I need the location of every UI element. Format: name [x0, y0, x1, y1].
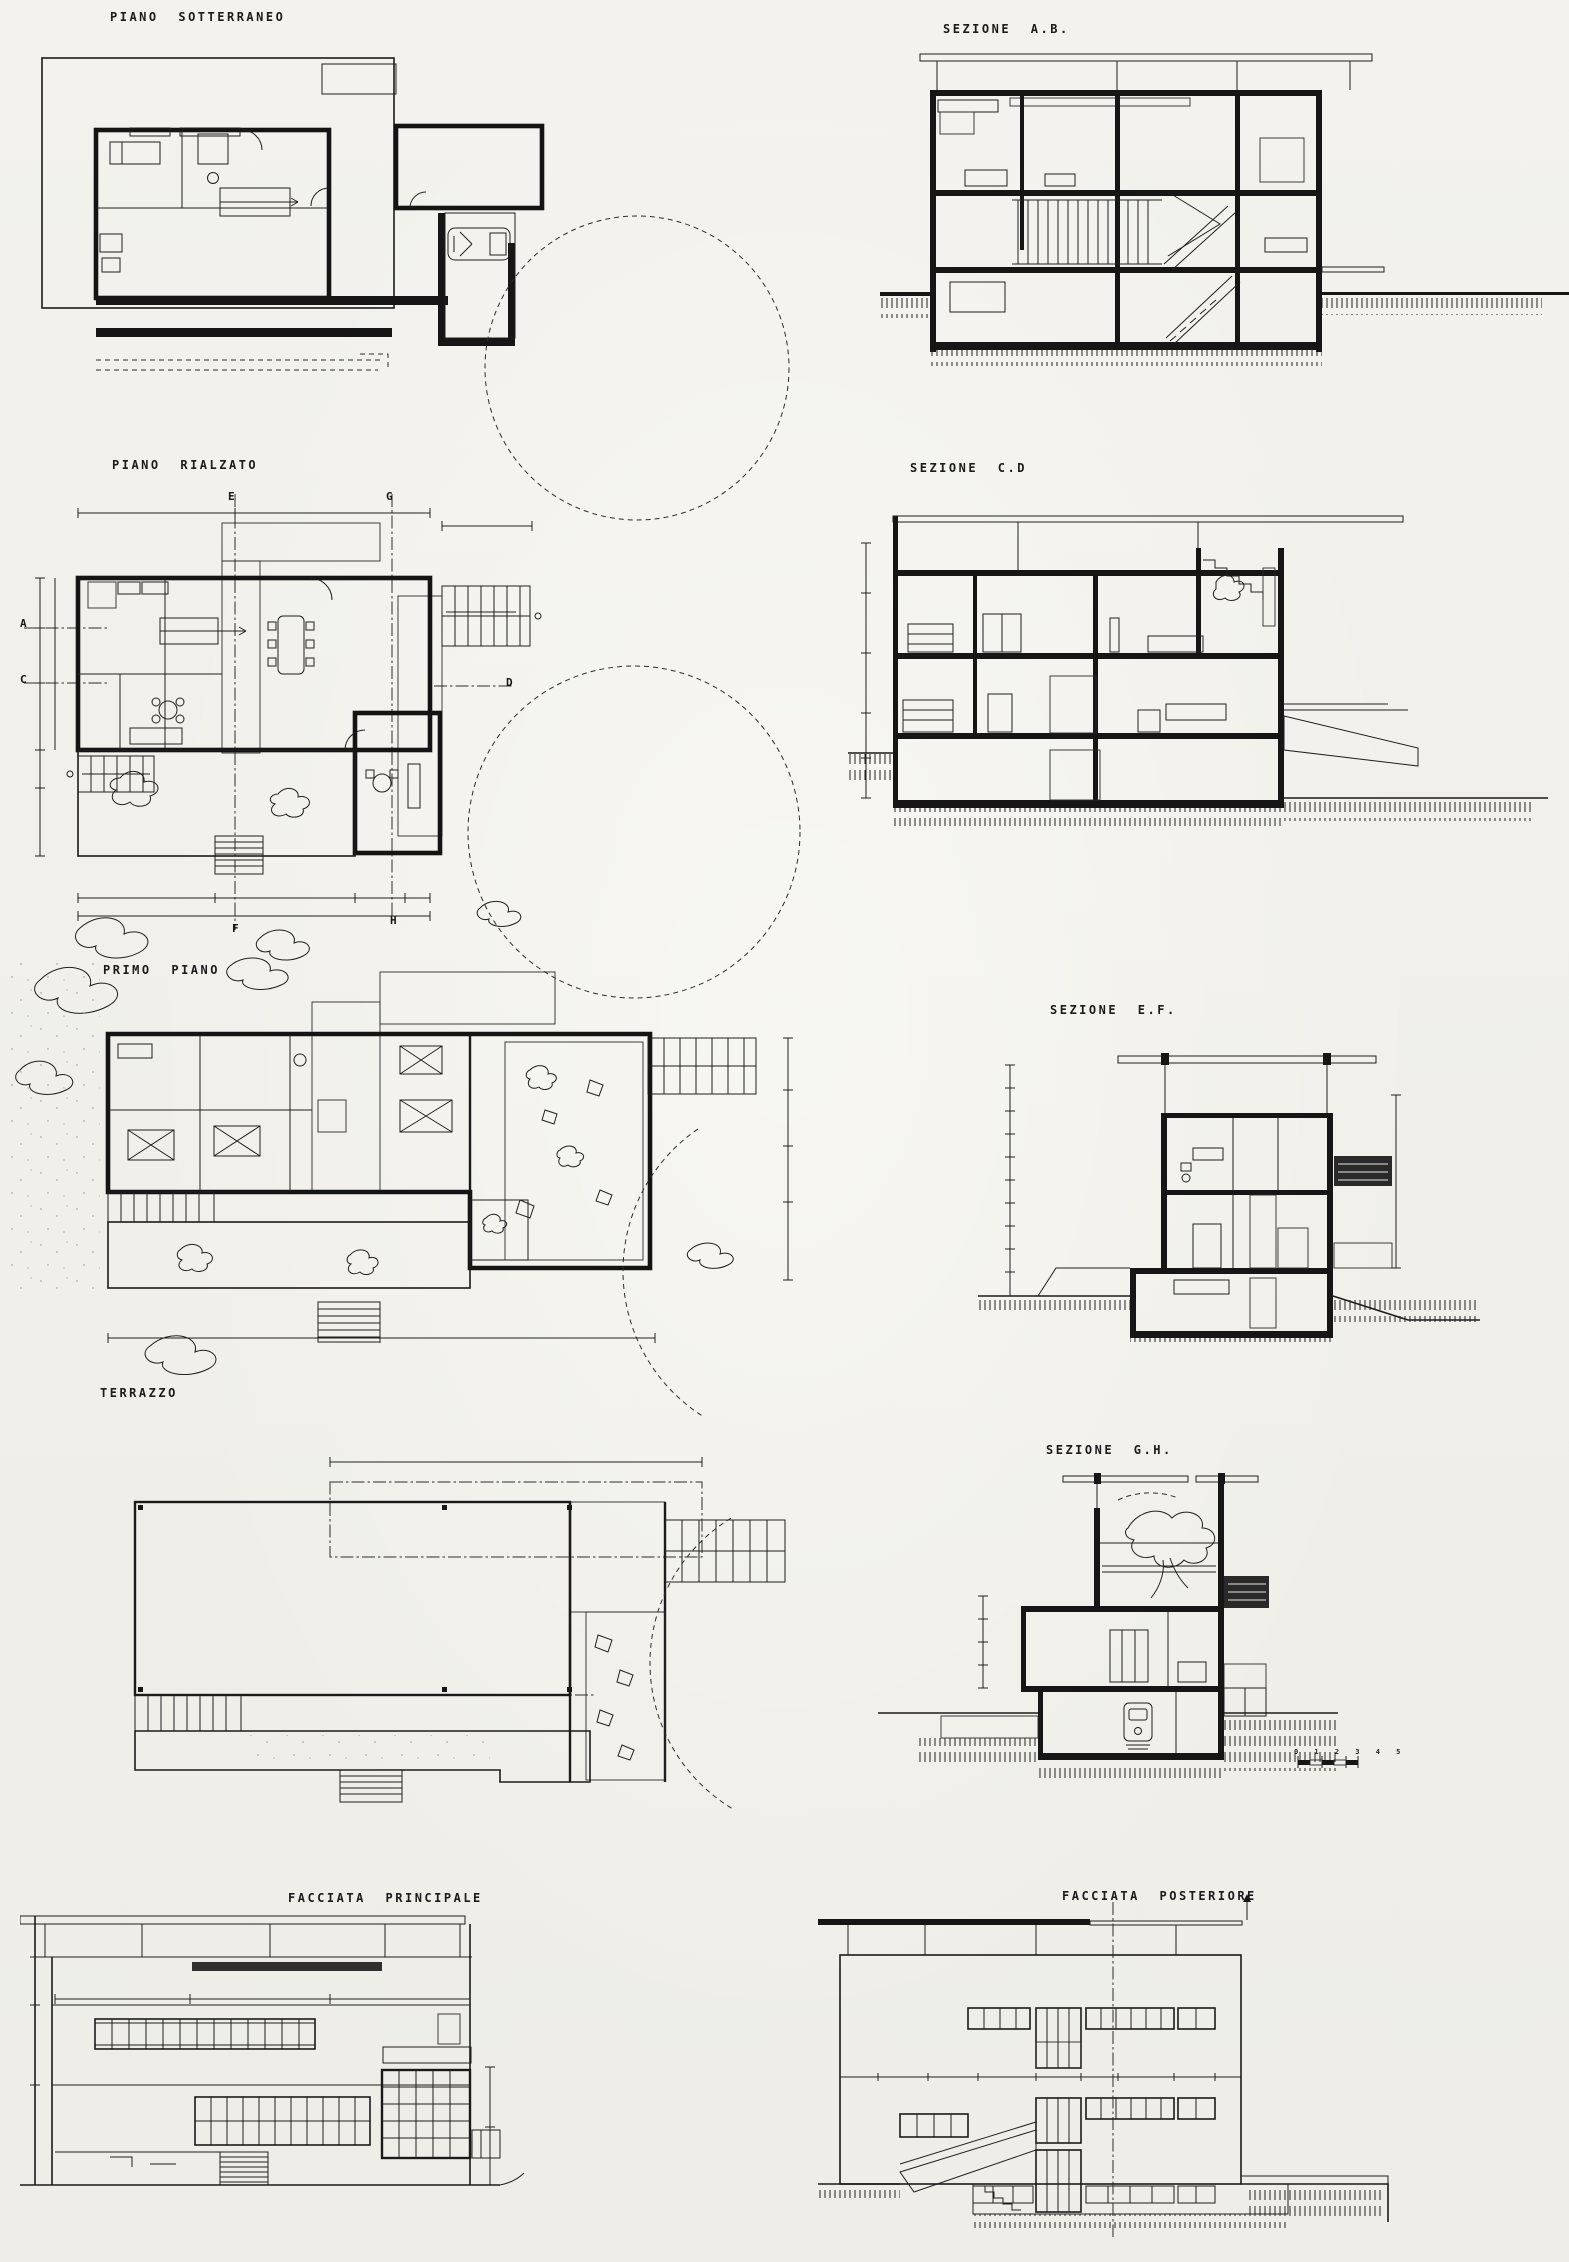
- landscape-blob: [477, 901, 521, 926]
- balcony: [108, 1192, 214, 1222]
- bed: [214, 1126, 260, 1156]
- windows-upper: [968, 2008, 1215, 2068]
- label-piano-sotterraneo: PIANO SOTTERRANEO: [110, 10, 285, 25]
- roof-slab: [920, 54, 1372, 61]
- roof-deck-grid: [135, 1502, 570, 1695]
- roof-slab: [20, 1916, 465, 1924]
- windows-middle: [900, 2098, 1215, 2143]
- court-paving: [505, 1042, 643, 1260]
- roof-posts: [848, 1925, 1176, 1955]
- dimension-line: [330, 1457, 702, 1467]
- dark-balcony: [1334, 1156, 1392, 1186]
- label-primo-piano: PRIMO PIANO: [103, 963, 220, 978]
- windows-basement: [973, 2186, 1215, 2203]
- panel-facciata-principale: [20, 1902, 742, 2262]
- corridor-wall: [96, 296, 448, 305]
- floor-slab: [930, 190, 1322, 196]
- stone-wall: [941, 1716, 1038, 1738]
- dimension-line: [55, 1994, 470, 2004]
- roof-posts: [937, 61, 1350, 90]
- panel-sezione-cd: [848, 498, 1569, 903]
- section-ef-drawing: [978, 1028, 1480, 1343]
- dimension-lines: [35, 508, 532, 921]
- lower-floor-outline: [330, 1482, 702, 1557]
- section-marker-a: A: [20, 617, 27, 630]
- balcony: [135, 1695, 241, 1731]
- stair-hatch: [1250, 1195, 1276, 1268]
- panel-sezione-ab: [880, 42, 1569, 437]
- court-room: [470, 1200, 528, 1260]
- terrace-strip: [312, 1002, 380, 1192]
- dimension-ruler: [783, 1038, 793, 1280]
- scale-bar-numbers: 0 1 2 3 4 5: [1294, 1748, 1406, 1756]
- dining-table: [268, 616, 314, 674]
- roof-slab: [1118, 1056, 1376, 1063]
- panel-sezione-gh: [878, 1448, 1569, 1823]
- panel-primo-piano: [0, 950, 830, 1395]
- tree-blob: [347, 1250, 378, 1275]
- outer-walls: [108, 1034, 650, 1268]
- pit-steps: [976, 2186, 1021, 2210]
- garden-terrace: [78, 750, 355, 856]
- car-plan: [448, 228, 510, 260]
- external-stair-ne: [665, 1520, 785, 1582]
- front-elevation-drawing: [20, 1902, 742, 2262]
- label-piano-rialzato: PIANO RIALZATO: [112, 458, 258, 473]
- landscape-blob: [227, 958, 288, 990]
- bed: [400, 1100, 452, 1132]
- attic-band: [192, 1962, 382, 1971]
- external-stair-ne: [442, 586, 541, 646]
- external-stair-ne: [648, 1038, 756, 1094]
- entry-stair: [220, 2152, 268, 2185]
- basement-walls: [96, 130, 329, 298]
- panel-piano-rialzato: [10, 478, 810, 973]
- hill-bank: [1284, 704, 1418, 766]
- section-marker-f: F: [232, 922, 239, 935]
- section-marker-e: E: [228, 490, 235, 503]
- roof-slab: [893, 516, 1403, 522]
- ribbon-window-upper: [95, 2019, 315, 2049]
- outer-walls: [78, 578, 430, 750]
- roof-slab: [1063, 1476, 1188, 1482]
- section-cd-drawing: [848, 498, 1569, 903]
- dimension-line: [840, 2073, 1241, 2081]
- glazed-wall: [1050, 676, 1096, 733]
- interior-stair: [160, 618, 246, 644]
- kitchen-fixture: [88, 582, 116, 608]
- label-facciata-posteriore: FACCIATA POSTERIORE: [1062, 1889, 1257, 1904]
- bed: [128, 1130, 174, 1160]
- upper-terrace-grid: [222, 523, 380, 561]
- side-window: [472, 2130, 500, 2158]
- landscape-blob: [687, 1243, 733, 1268]
- landscape-blob: [145, 1336, 216, 1375]
- label-facciata-principale: FACCIATA PRINCIPALE: [288, 1891, 483, 1906]
- ground-floor-plan-drawing: [10, 478, 810, 973]
- section-marker-c: C: [20, 673, 27, 686]
- roof-posts: [45, 1924, 460, 1957]
- parapet-band: [1010, 98, 1190, 106]
- stone-texture: [595, 1635, 634, 1760]
- balustrade: [1012, 200, 1162, 264]
- garden-stair-south: [340, 1770, 402, 1802]
- roof-slab: [818, 1919, 1090, 1925]
- stone-paving: [516, 1080, 612, 1218]
- panel-piano-sotterraneo: [30, 38, 670, 438]
- tree-blob: [177, 1244, 212, 1271]
- roof-stair: [1203, 560, 1275, 626]
- stair-hatch: [322, 64, 396, 94]
- bathroom: [318, 1100, 346, 1132]
- label-terrazzo: TERRAZZO: [100, 1386, 178, 1401]
- dimension-ruler: [1005, 1065, 1015, 1296]
- section-marker-h: H: [390, 914, 397, 927]
- basement-plan-drawing: [30, 38, 670, 438]
- bed: [400, 1046, 442, 1074]
- window: [1110, 1630, 1148, 1682]
- drawing-sheet: PIANO SOTTERRANEO SEZIONE A.B. PIANO RIA…: [0, 0, 1569, 2262]
- label-sezione-cd: SEZIONE C.D: [910, 461, 1027, 476]
- study-wing-walls: [355, 713, 440, 853]
- lower-terrace: [108, 1222, 470, 1288]
- section-marker-d: D: [506, 676, 513, 689]
- upper-terrace-grid: [380, 972, 555, 1024]
- car-front: [1124, 1703, 1152, 1749]
- section-ab-drawing: [880, 42, 1569, 437]
- garden-stair-south: [215, 836, 263, 874]
- tree-sketch: [1118, 1493, 1215, 1598]
- garden-stair-south: [318, 1302, 380, 1342]
- panel-sezione-ef: [978, 1028, 1480, 1343]
- dimension-ruler: [978, 1596, 988, 1688]
- terrace-strip: [222, 561, 260, 753]
- label-sezione-ef: SEZIONE E.F.: [1050, 1003, 1177, 1018]
- rear-elevation-drawing: [818, 1902, 1569, 2262]
- label-sezione-gh: SEZIONE G.H.: [1046, 1443, 1173, 1458]
- ribbon-window-lower: [195, 2097, 370, 2145]
- panel-facciata-posteriore: [818, 1902, 1569, 2262]
- section-marker-g: G: [386, 490, 393, 503]
- glazed-block: [382, 2014, 471, 2158]
- first-floor-plan-drawing: [0, 950, 830, 1395]
- panel-terrazzo: [30, 1440, 830, 1810]
- dimension-line: [108, 1333, 655, 1343]
- tree-blob: [270, 788, 309, 817]
- section-gh-drawing: [878, 1448, 1569, 1823]
- label-sezione-ab: SEZIONE A.B.: [943, 22, 1070, 37]
- garage-room-walls: [396, 126, 542, 208]
- roof-plan-drawing: [30, 1440, 830, 1810]
- court-tree: [526, 1066, 556, 1090]
